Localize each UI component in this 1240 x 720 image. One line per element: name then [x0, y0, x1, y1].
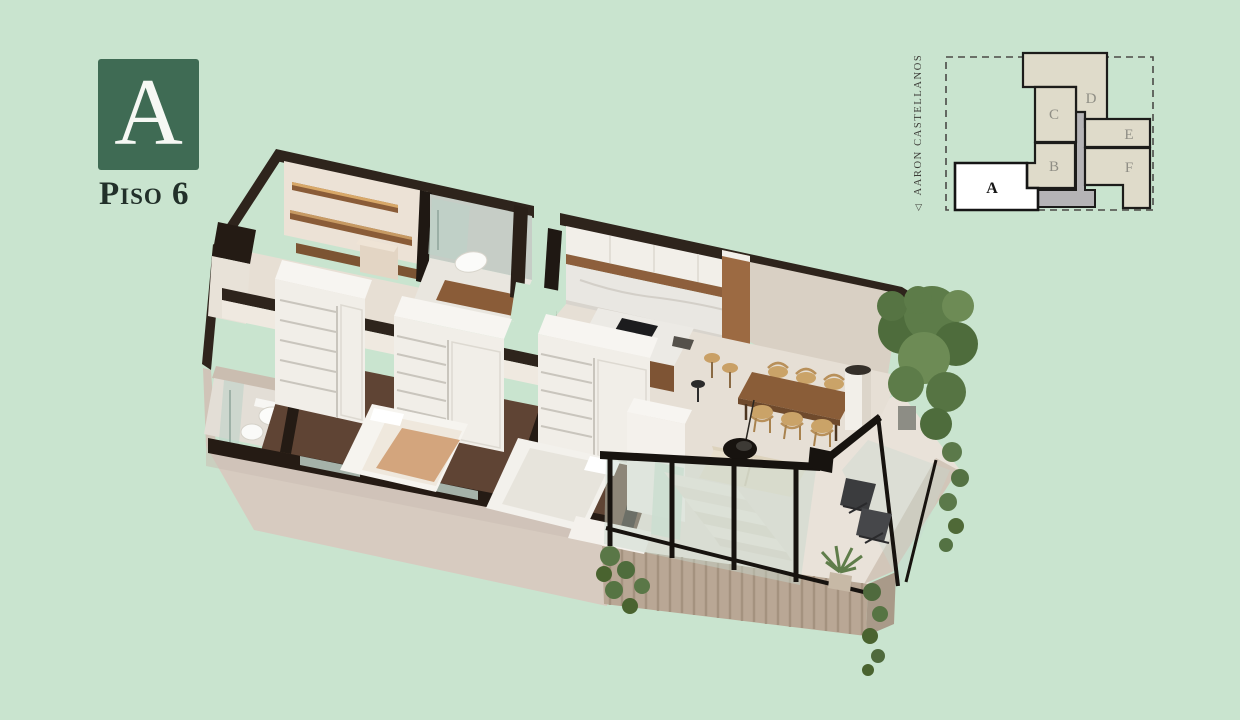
bar-stool [704, 353, 720, 363]
bidet [241, 424, 263, 440]
bar-stool [691, 380, 705, 388]
floor-plate-page: A Piso 6 ◁AARON CASTELLANOS A B C D E F [0, 0, 1240, 720]
page: { "palette": { "background": "#c9e4cf", … [0, 0, 1240, 720]
wardrobe-1 [275, 260, 372, 424]
column [845, 365, 871, 430]
apartment-render [0, 0, 1240, 720]
bar-stool [722, 363, 738, 373]
